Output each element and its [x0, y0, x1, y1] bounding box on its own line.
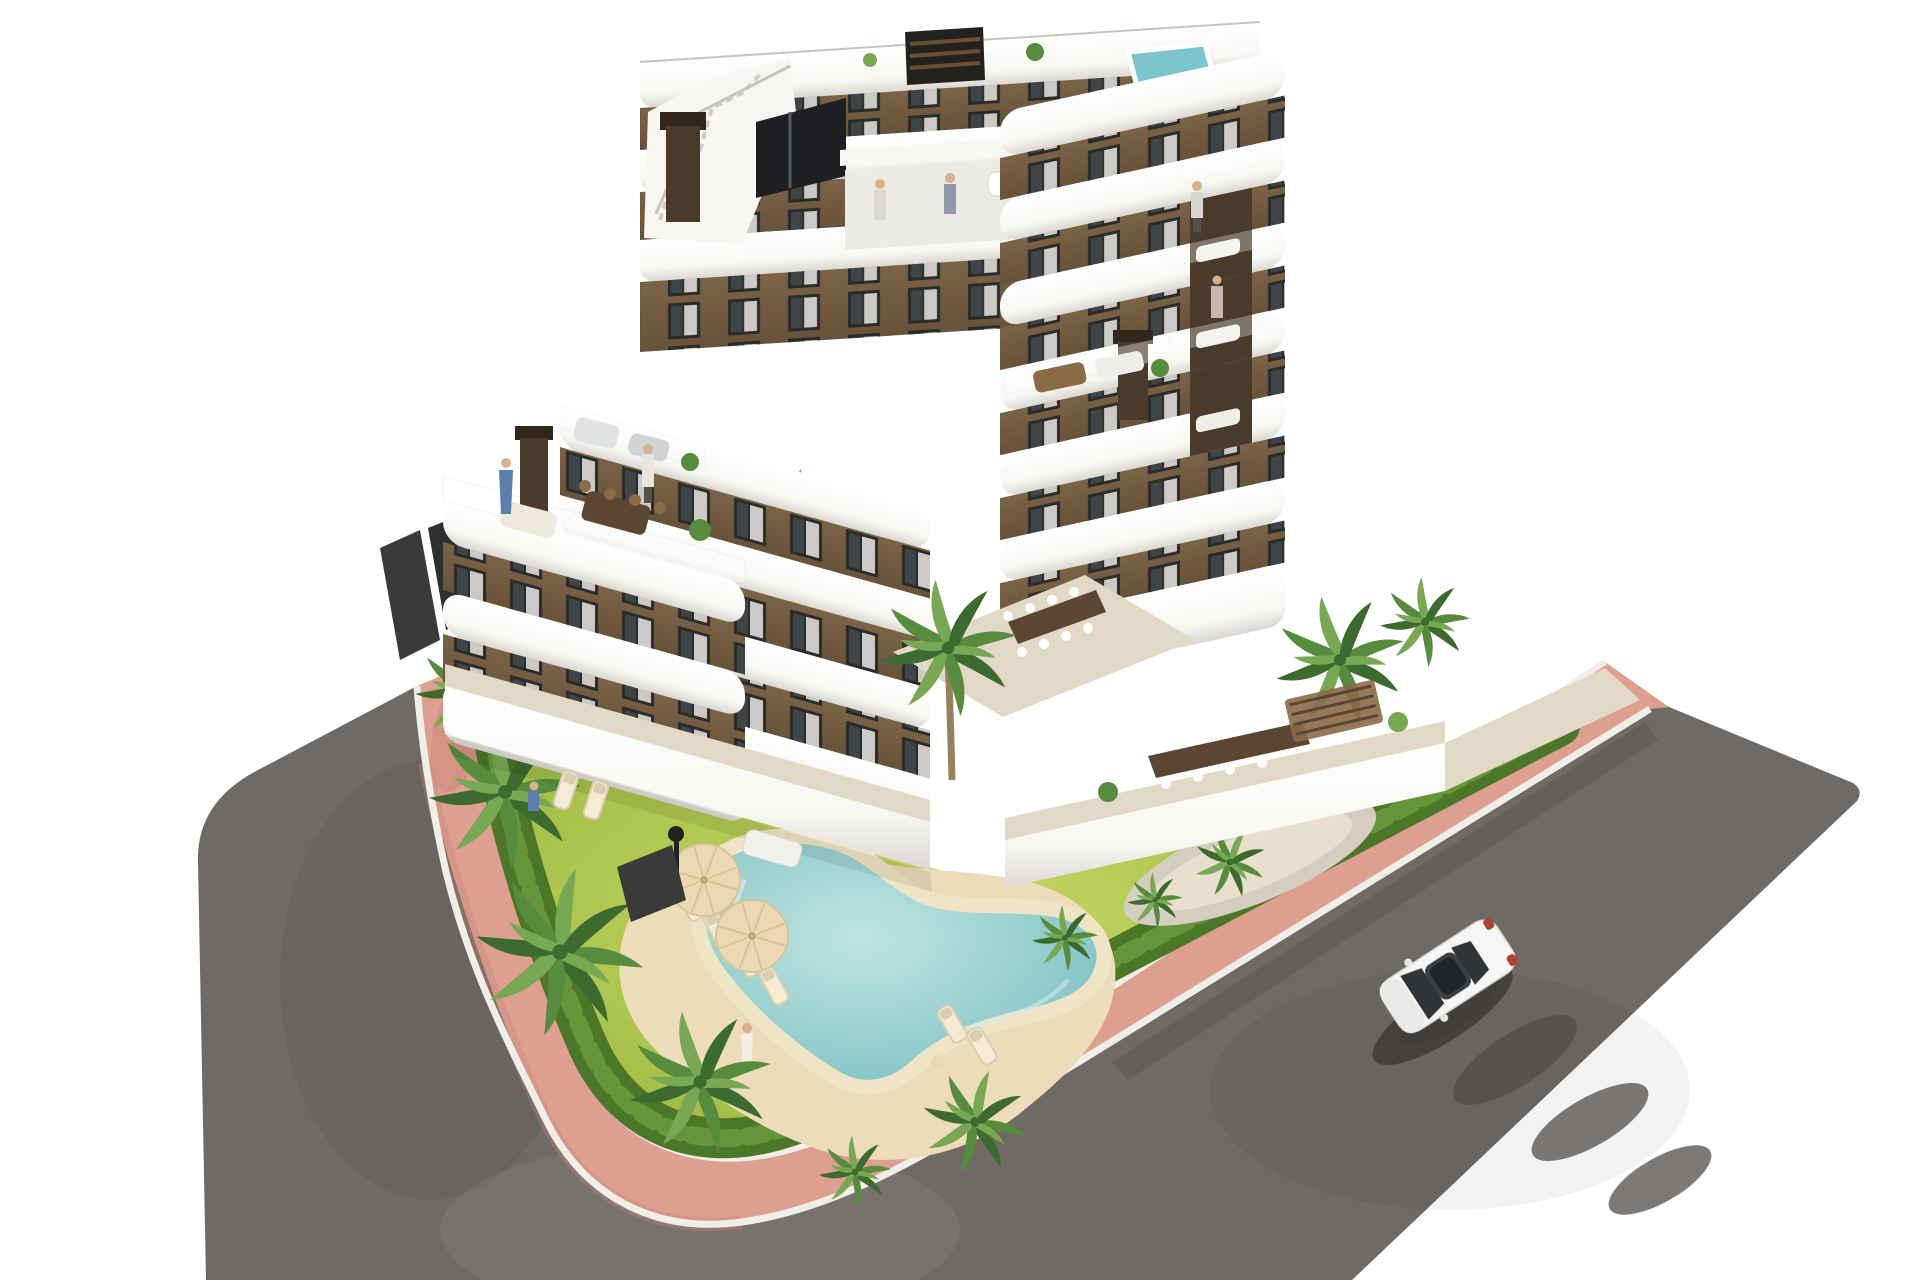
terrace-plant [1151, 359, 1169, 377]
roof-plant [863, 53, 877, 67]
roof-plant [1026, 43, 1044, 61]
patio-plant [1388, 712, 1408, 732]
chimney [666, 126, 700, 222]
side-table [931, 1055, 945, 1069]
person-roof [874, 179, 886, 220]
patio-plant [1098, 782, 1118, 802]
person-roof [944, 173, 956, 214]
person-seated [528, 782, 539, 812]
scene-svg [0, 0, 1920, 1280]
parasol [716, 900, 788, 972]
terrace-plant [689, 519, 711, 541]
chimney-cap [515, 426, 553, 440]
terrace-plant [681, 453, 699, 471]
render-canvas [0, 0, 1920, 1280]
